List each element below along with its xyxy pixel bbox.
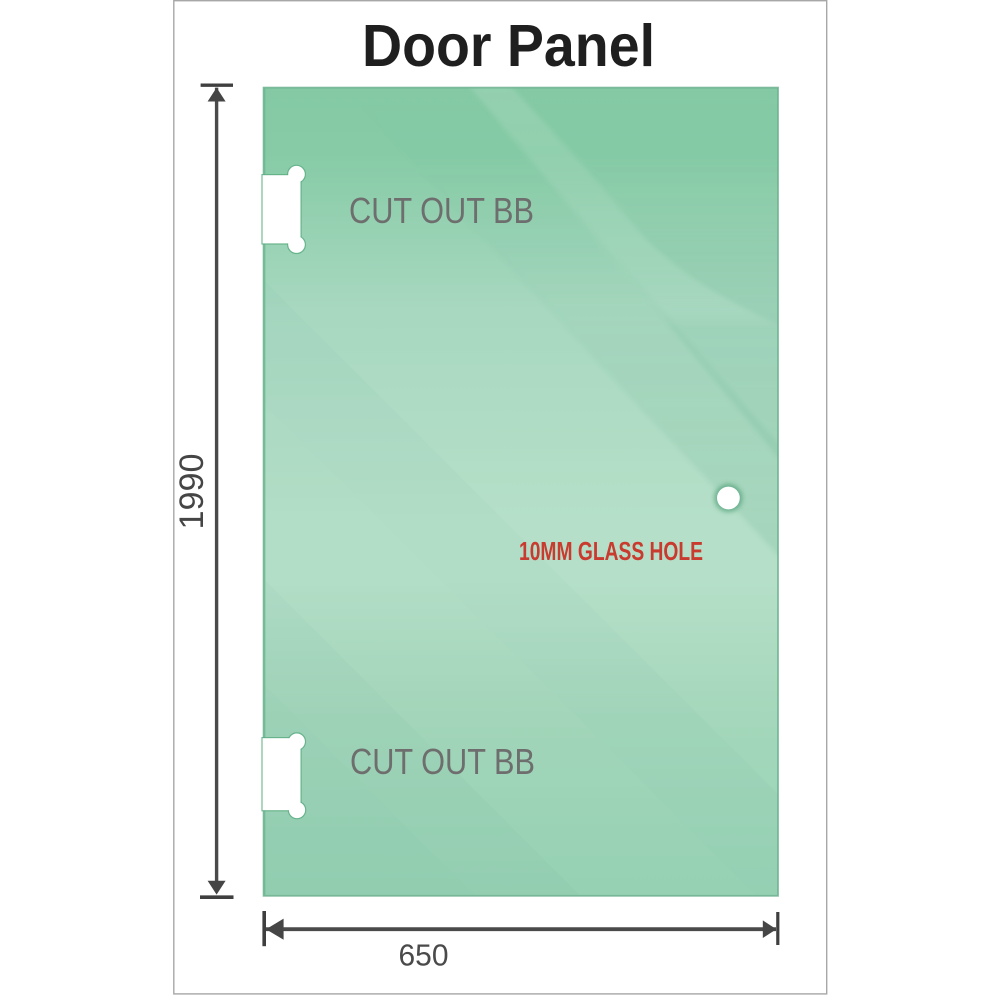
svg-text:CUT OUT BB: CUT OUT BB (350, 741, 535, 782)
svg-text:CUT OUT BB: CUT OUT BB (349, 190, 534, 231)
svg-text:650: 650 (399, 937, 449, 972)
svg-text:1990: 1990 (173, 454, 211, 530)
svg-text:Door Panel: Door Panel (362, 13, 655, 79)
svg-text:10MM GLASS HOLE: 10MM GLASS HOLE (519, 538, 703, 566)
